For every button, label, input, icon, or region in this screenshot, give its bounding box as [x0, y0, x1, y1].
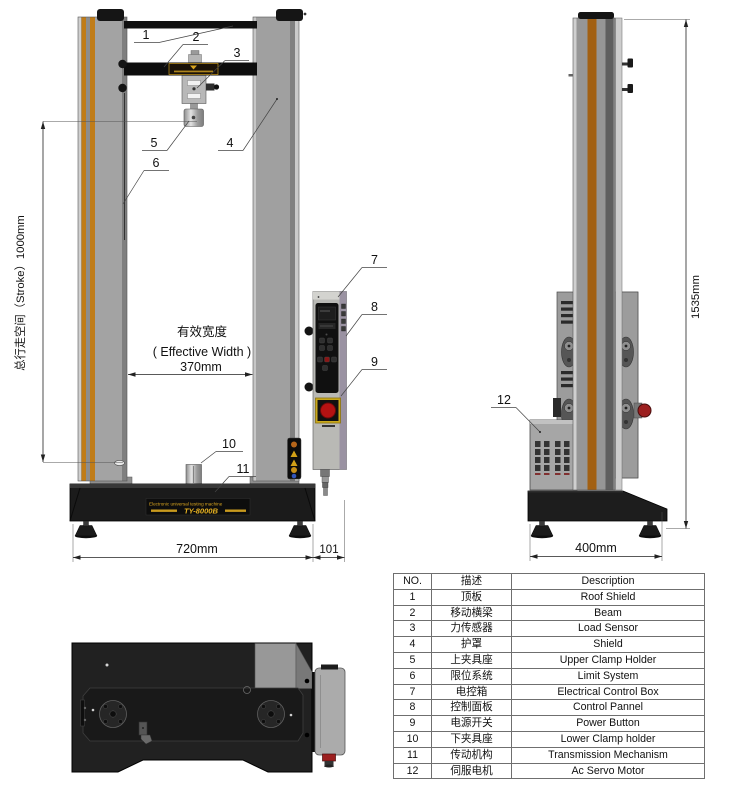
table-row: 12伺服电机Ac Servo Motor: [394, 763, 705, 779]
table-cell: 3: [394, 621, 432, 637]
table-row: 6限位系统Limit System: [394, 668, 705, 684]
table-row: 7电控箱Electrical Control Box: [394, 684, 705, 700]
table-header-row: NO. 描述 Description: [394, 574, 705, 590]
table-cell: Beam: [512, 605, 705, 621]
table-cell: 11: [394, 747, 432, 763]
table-cell: 4: [394, 637, 432, 653]
callout-3: 3: [234, 46, 241, 60]
control-panel: [316, 303, 339, 393]
table-row: 10下夹具座Lower Clamp holder: [394, 731, 705, 747]
load-sensor: [182, 76, 219, 104]
callout-1: 1: [143, 28, 150, 42]
callout-5: 5: [151, 136, 158, 150]
electrical-control-box: [305, 292, 347, 496]
lower-clamp-holder: [186, 465, 202, 485]
table-cell: 9: [394, 716, 432, 732]
table-cell: 8: [394, 700, 432, 716]
table-row: 8控制面板Control Pannel: [394, 700, 705, 716]
table-cell: 7: [394, 684, 432, 700]
table-cell: 6: [394, 668, 432, 684]
depth-value: 400mm: [575, 541, 617, 555]
base-width-value: 720mm: [176, 542, 218, 556]
ac-servo-motor-box: [530, 420, 577, 490]
power-button: [316, 398, 341, 427]
table-cell: Electrical Control Box: [512, 684, 705, 700]
callout-11: 11: [237, 462, 250, 476]
table-cell: 控制面板: [432, 700, 512, 716]
pendant-red-connector: [323, 754, 336, 761]
table-row: 3力传感器Load Sensor: [394, 621, 705, 637]
table-cell: Limit System: [512, 668, 705, 684]
right-column-cap: [276, 9, 303, 21]
table-cell: 5: [394, 652, 432, 668]
effective-width-cn: 有效宽度: [177, 324, 228, 339]
side-view: 400mm 1535mm 12: [420, 0, 741, 570]
base-plate-model: TY-8000B: [184, 507, 219, 516]
effective-width-dimension: 有效宽度 ( Effective Width ) 370mm: [128, 324, 253, 377]
table-cell: 12: [394, 763, 432, 779]
machine-base: Electronic universal testing machine TY-…: [70, 484, 315, 521]
callout-8: 8: [371, 300, 378, 314]
header-description-en: Description: [512, 574, 705, 590]
table-cell: 力传感器: [432, 621, 512, 637]
table-cell: 护罩: [432, 637, 512, 653]
table-cell: Control Pannel: [512, 700, 705, 716]
technical-drawing: Electronic universal testing machine TY-…: [0, 0, 741, 798]
beam-bolt-base: [189, 55, 202, 63]
pendant-connector: [321, 470, 330, 496]
side-base: [528, 491, 667, 521]
top-view-transmission-panel: [81, 688, 304, 744]
table-cell: 下夹具座: [432, 731, 512, 747]
callout-2: 2: [193, 30, 200, 44]
control-box-width-value: 101: [319, 544, 338, 556]
screw-flange: [258, 701, 285, 728]
table-cell: 伺服电机: [432, 763, 512, 779]
callout-9: 9: [371, 355, 378, 369]
header-no: NO.: [394, 574, 432, 590]
table-row: 4护罩Shield: [394, 637, 705, 653]
table-cell: 移动横梁: [432, 605, 512, 621]
table-cell: 电控箱: [432, 684, 512, 700]
table-row: 9电源开关Power Button: [394, 716, 705, 732]
callout-12: 12: [497, 393, 511, 407]
screw-flange: [100, 701, 127, 728]
table-cell: 上夹具座: [432, 652, 512, 668]
right-column: [253, 17, 299, 481]
table-cell: 顶板: [432, 589, 512, 605]
sensor-stud: [191, 104, 198, 110]
table-row: 1顶板Roof Shield: [394, 589, 705, 605]
parts-table: NO. 描述 Description 1顶板Roof Shield 2移动横梁B…: [393, 573, 705, 779]
table-cell: Lower Clamp holder: [512, 731, 705, 747]
cap-bolt: [304, 13, 307, 16]
table-cell: 2: [394, 605, 432, 621]
table-cell: Upper Clamp Holder: [512, 652, 705, 668]
table-cell: 传动机构: [432, 747, 512, 763]
machine-foot: [639, 521, 661, 538]
table-cell: Roof Shield: [512, 589, 705, 605]
machine-foot: [531, 521, 553, 538]
effective-width-value: 370mm: [180, 360, 222, 374]
table-row: 11传动机构Transmission Mechanism: [394, 747, 705, 763]
machine-foot: [75, 521, 97, 538]
table-cell: Transmission Mechanism: [512, 747, 705, 763]
table-cell: 电源开关: [432, 716, 512, 732]
callout-4: 4: [227, 136, 234, 150]
side-hand-wheel: [638, 404, 651, 417]
table-cell: Load Sensor: [512, 621, 705, 637]
table-cell: 限位系统: [432, 668, 512, 684]
table-cell: Ac Servo Motor: [512, 763, 705, 779]
table-cell: Shield: [512, 637, 705, 653]
machine-foot: [289, 521, 311, 538]
moving-beam: [124, 63, 257, 76]
left-column-cap: [97, 9, 124, 21]
limit-knobs-side: [622, 59, 633, 94]
front-view: Electronic universal testing machine TY-…: [0, 0, 420, 570]
warning-sticker: [288, 438, 302, 479]
stroke-dim-label: 总行走空间（Stroke）1000mm: [13, 215, 27, 371]
top-view: [40, 620, 360, 798]
top-view-pendant: [312, 665, 345, 768]
effective-width-en: ( Effective Width ): [153, 345, 251, 359]
table-cell: Power Button: [512, 716, 705, 732]
table-cell: 1: [394, 589, 432, 605]
callout-7: 7: [371, 253, 378, 267]
callout-6: 6: [153, 156, 160, 170]
table-row: 2移动横梁Beam: [394, 605, 705, 621]
table-cell: 10: [394, 731, 432, 747]
table-row: 5上夹具座Upper Clamp Holder: [394, 652, 705, 668]
header-description-cn: 描述: [432, 574, 512, 590]
callout-10: 10: [222, 437, 236, 451]
height-value: 1535mm: [690, 275, 702, 319]
